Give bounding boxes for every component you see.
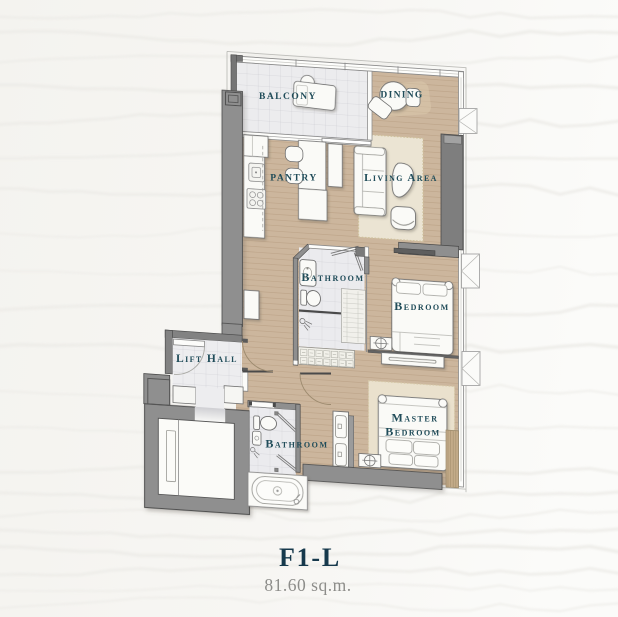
svg-text:F1-L: F1-L	[279, 543, 341, 572]
svg-text:Lift Hall: Lift Hall	[176, 353, 238, 365]
svg-text:81.60 sq.m.: 81.60 sq.m.	[264, 575, 351, 595]
svg-text:Bedroom: Bedroom	[385, 425, 440, 439]
svg-text:DINING: DINING	[380, 91, 423, 101]
svg-text:Living Area: Living Area	[364, 172, 438, 184]
svg-text:Bathroom: Bathroom	[265, 437, 328, 451]
svg-text:Bathroom: Bathroom	[301, 270, 364, 284]
svg-text:Bedroom: Bedroom	[394, 299, 449, 313]
svg-text:BALCONY: BALCONY	[259, 92, 317, 102]
svg-text:Master: Master	[391, 411, 438, 425]
svg-text:PANTRY: PANTRY	[270, 174, 318, 184]
